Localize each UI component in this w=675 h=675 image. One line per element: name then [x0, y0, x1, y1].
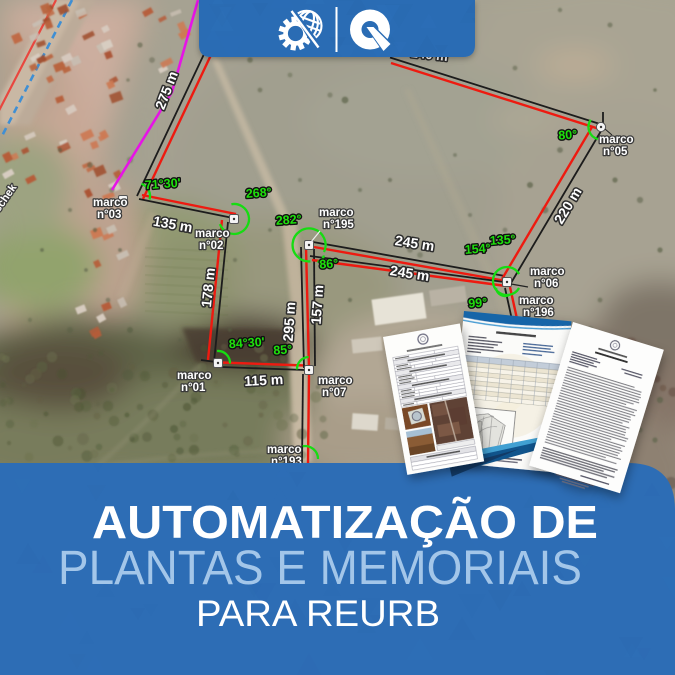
svg-text:n°06: n°06 — [534, 278, 558, 290]
svg-text:135°: 135° — [489, 232, 516, 248]
svg-text:marco: marco — [519, 295, 554, 307]
svg-text:marco: marco — [599, 134, 634, 146]
svg-text:AUTOMATIZAÇÃO DE: AUTOMATIZAÇÃO DE — [92, 496, 598, 548]
svg-text:268°: 268° — [245, 185, 272, 201]
svg-text:86°: 86° — [319, 256, 339, 271]
svg-text:71°30': 71°30' — [144, 176, 181, 192]
svg-text:282°: 282° — [275, 212, 302, 228]
svg-text:n°195: n°195 — [323, 219, 354, 231]
svg-text:n°01: n°01 — [181, 382, 206, 394]
svg-text:n°05: n°05 — [603, 146, 628, 158]
svg-text:n°02: n°02 — [199, 240, 223, 252]
svg-text:n°03: n°03 — [97, 209, 121, 221]
svg-text:99°: 99° — [468, 295, 488, 310]
svg-text:154°: 154° — [464, 241, 491, 257]
svg-text:marco: marco — [318, 375, 353, 387]
svg-text:295 m: 295 m — [280, 301, 299, 342]
svg-text:84°30': 84°30' — [228, 335, 265, 351]
svg-text:PARA REURB: PARA REURB — [196, 593, 440, 634]
svg-text:marco: marco — [267, 444, 302, 456]
svg-text:marco: marco — [319, 207, 354, 219]
svg-text:157 m: 157 m — [308, 284, 327, 325]
svg-text:80°: 80° — [558, 127, 578, 142]
svg-text:n°07: n°07 — [322, 387, 346, 399]
svg-text:85°: 85° — [273, 342, 293, 357]
svg-text:PLANTAS E MEMORIAIS: PLANTAS E MEMORIAIS — [58, 542, 582, 595]
svg-text:115 m: 115 m — [244, 371, 284, 389]
svg-text:marco: marco — [530, 266, 565, 278]
svg-text:marco: marco — [195, 228, 230, 240]
svg-text:marco: marco — [93, 197, 128, 209]
svg-text:marco: marco — [177, 370, 212, 382]
